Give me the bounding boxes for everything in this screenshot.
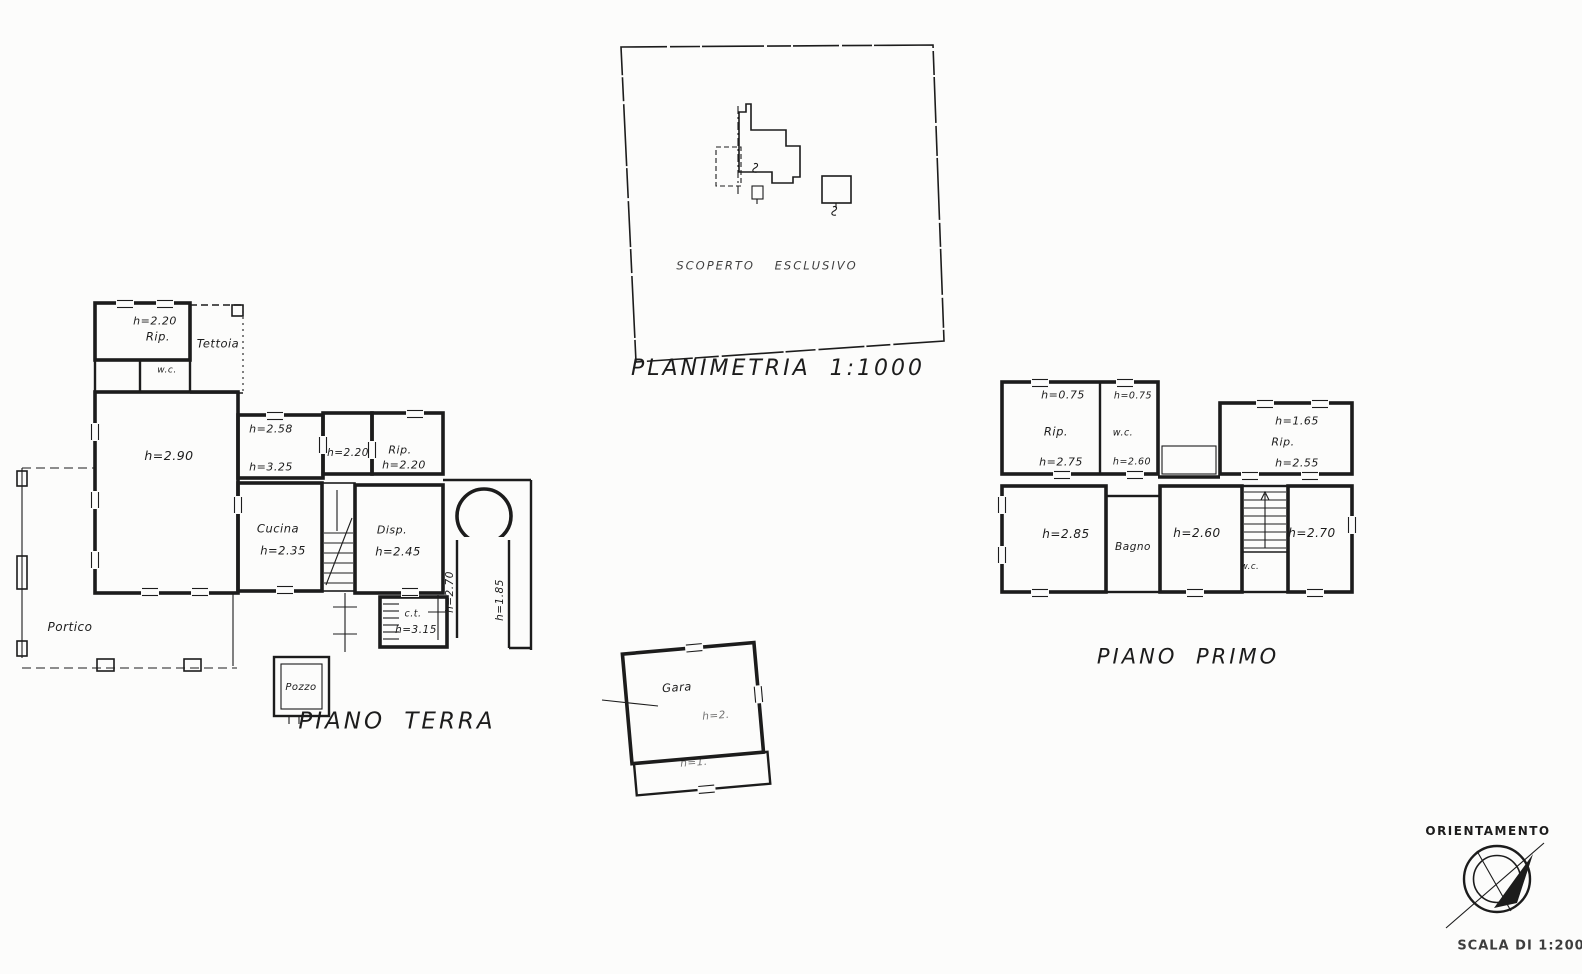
ground-floor-linework	[17, 299, 531, 724]
gf-rip-east-room-label: Rip.	[388, 445, 411, 456]
ff-camera-se-height-label: h=2.70	[1288, 527, 1335, 539]
ff-camera-center-height-label: h=2.60	[1173, 527, 1220, 539]
gf-ct-room-label: c.t.	[405, 609, 422, 619]
ground-floor-title: PIANO TERRA	[298, 711, 495, 734]
portico-linework	[17, 468, 237, 671]
site-plan-linework	[621, 45, 944, 362]
garage-room-label: Gara	[662, 681, 692, 695]
ff-wc-top-room-label: w.c.	[1113, 428, 1133, 438]
compass-icon	[1446, 843, 1544, 928]
gf-passage-height-left-label: h=2.70	[445, 571, 456, 613]
scale-label: SCALA DI 1:200	[1457, 940, 1582, 953]
ff-wc-small-room-label: w.c.	[1241, 563, 1260, 572]
gf-disp-height-label: h=2.45	[375, 546, 421, 558]
ff-rip-ne-height-label: h=2.55	[1275, 458, 1319, 469]
first-floor-openings	[997, 378, 1357, 598]
ff-bagno-room-label: Bagno	[1115, 542, 1151, 553]
gf-disp-room-label: Disp.	[377, 525, 407, 536]
site-plan-title: PLANIMETRIA 1:1000	[631, 358, 925, 380]
gf-rip-east-height-label: h=2.20	[382, 460, 426, 471]
ground-floor-openings	[90, 299, 424, 597]
plan-linework	[0, 0, 1582, 974]
ff-wc-top-height-label: h=2.60	[1113, 457, 1151, 467]
cadastral-floor-plan-sheet: SCOPERTO ESCLUSIVO PLANIMETRIA 1:1000 h=…	[0, 0, 1582, 974]
gf-rip-nw-height-label: h=2.20	[133, 316, 177, 327]
ff-rip-ne-room-label: Rip.	[1271, 437, 1294, 448]
gf-rip-nw-room-label: Rip.	[146, 331, 170, 343]
ff-rip-nw-height-label: h=2.75	[1039, 457, 1083, 468]
gf-passage-height-right-label: h=1.85	[495, 579, 506, 621]
site-area-label: SCOPERTO ESCLUSIVO	[676, 260, 857, 272]
gf-cucina-room-label: Cucina	[257, 523, 299, 535]
gf-cucina-height-label: h=2.35	[260, 545, 306, 557]
garage-height-low-label: h=1.	[680, 757, 708, 769]
first-floor-linework	[997, 378, 1357, 598]
ff-rip-ne-height-top-label: h=1.65	[1275, 416, 1319, 427]
gf-pozzo-room-label: Pozzo	[285, 683, 316, 693]
gf-tettoia-room-label: Tettoia	[197, 338, 239, 350]
ff-rip-nw-height-top-label: h=0.75	[1041, 390, 1085, 401]
gf-room-east-height-upper-label: h=2.58	[249, 424, 293, 435]
gf-wc-room-label: w.c.	[157, 367, 176, 376]
ff-rip-nw-room-label: Rip.	[1044, 426, 1068, 438]
gf-portico-room-label: Portico	[48, 621, 93, 633]
first-floor-title: PIANO PRIMO	[1097, 647, 1279, 668]
garage-height-main-label: h=2.	[702, 710, 730, 722]
ff-camera-sw-height-label: h=2.85	[1042, 528, 1089, 540]
ground-floor-stairs	[324, 490, 353, 585]
ff-wc-top-height-top-label: h=0.75	[1114, 391, 1152, 401]
entrance-step-marks	[333, 593, 448, 652]
gf-room-east-height-lower-label: h=3.25	[249, 462, 293, 473]
first-floor-stairs	[1244, 492, 1286, 548]
garage-leader-line	[602, 700, 658, 706]
gf-main-room-height-label: h=2.90	[144, 450, 193, 463]
gf-room-small-height-label: h=2.20	[327, 448, 369, 459]
gf-ct-height-label: h=3.15	[395, 625, 437, 636]
garage-linework	[622, 637, 772, 800]
orientation-title: ORIENTAMENTO	[1425, 825, 1550, 837]
